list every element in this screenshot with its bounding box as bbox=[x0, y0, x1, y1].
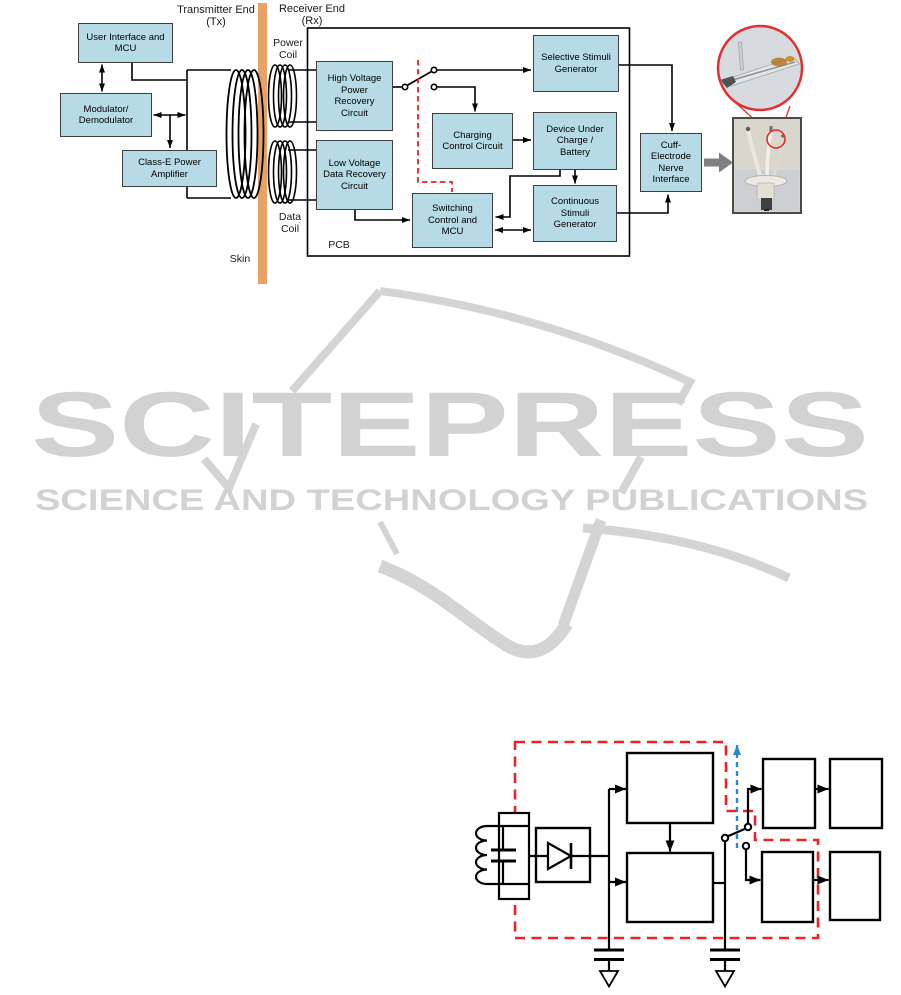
block-charging-control: Charging Control Circuit bbox=[432, 113, 513, 169]
rx-spdt-switch bbox=[393, 67, 437, 89]
block-switching-control-mcu: Switching Control and MCU bbox=[412, 193, 493, 248]
figure2-circuit bbox=[476, 753, 882, 987]
block-cuff-electrode-nerve-interface: Cuff-Electrode Nerve Interface bbox=[640, 133, 702, 192]
cuff-electrode-photo-inset bbox=[718, 26, 802, 213]
label-data-coil: Data Coil bbox=[269, 210, 311, 236]
block-user-interface-mcu: User Interface and MCU bbox=[78, 23, 173, 63]
schematic-box-bottom-middle bbox=[627, 853, 713, 922]
block-continuous-stimuli-generator: Continuous Stimuli Generator bbox=[533, 185, 617, 242]
block-selective-stimuli-generator: Selective Stimuli Generator bbox=[533, 35, 619, 92]
skin-barrier-bar bbox=[258, 3, 267, 284]
to-photo-arrow bbox=[704, 153, 733, 173]
tx-coil bbox=[227, 70, 264, 198]
schematic-box-top-middle bbox=[627, 753, 713, 823]
label-transmitter-end: Transmitter End (Tx) bbox=[177, 2, 255, 30]
block-high-voltage-power-recovery: High Voltage Power Recovery Circuit bbox=[316, 61, 393, 131]
block-modulator-demodulator: Modulator/ Demodulator bbox=[60, 93, 152, 137]
ground-capacitor-right bbox=[710, 950, 740, 987]
block-low-voltage-data-recovery: Low Voltage Data Recovery Circuit bbox=[316, 140, 393, 210]
rx-power-coil bbox=[269, 65, 297, 127]
schematic-box-r1c2 bbox=[830, 759, 882, 828]
label-power-coil: Power Coil bbox=[267, 36, 309, 62]
ground-capacitor-left bbox=[594, 950, 624, 987]
label-receiver-end: Receiver End (Rx) bbox=[272, 1, 352, 29]
schematic-box-r1c1 bbox=[763, 759, 815, 828]
paper-page: SCITEPRESS SCIENCE AND TECHNOLOGY PUBLIC… bbox=[0, 0, 901, 995]
schematic-coil bbox=[476, 826, 487, 884]
schematic-box-r2c2 bbox=[830, 852, 880, 920]
schematic-box-r2c1 bbox=[762, 852, 813, 922]
block-device-under-charge: Device Under Charge / Battery bbox=[533, 112, 617, 170]
label-pcb: PCB bbox=[322, 238, 356, 252]
label-skin: Skin bbox=[222, 252, 258, 266]
block-class-e-power-amplifier: Class-E Power Amplifier bbox=[122, 150, 217, 187]
